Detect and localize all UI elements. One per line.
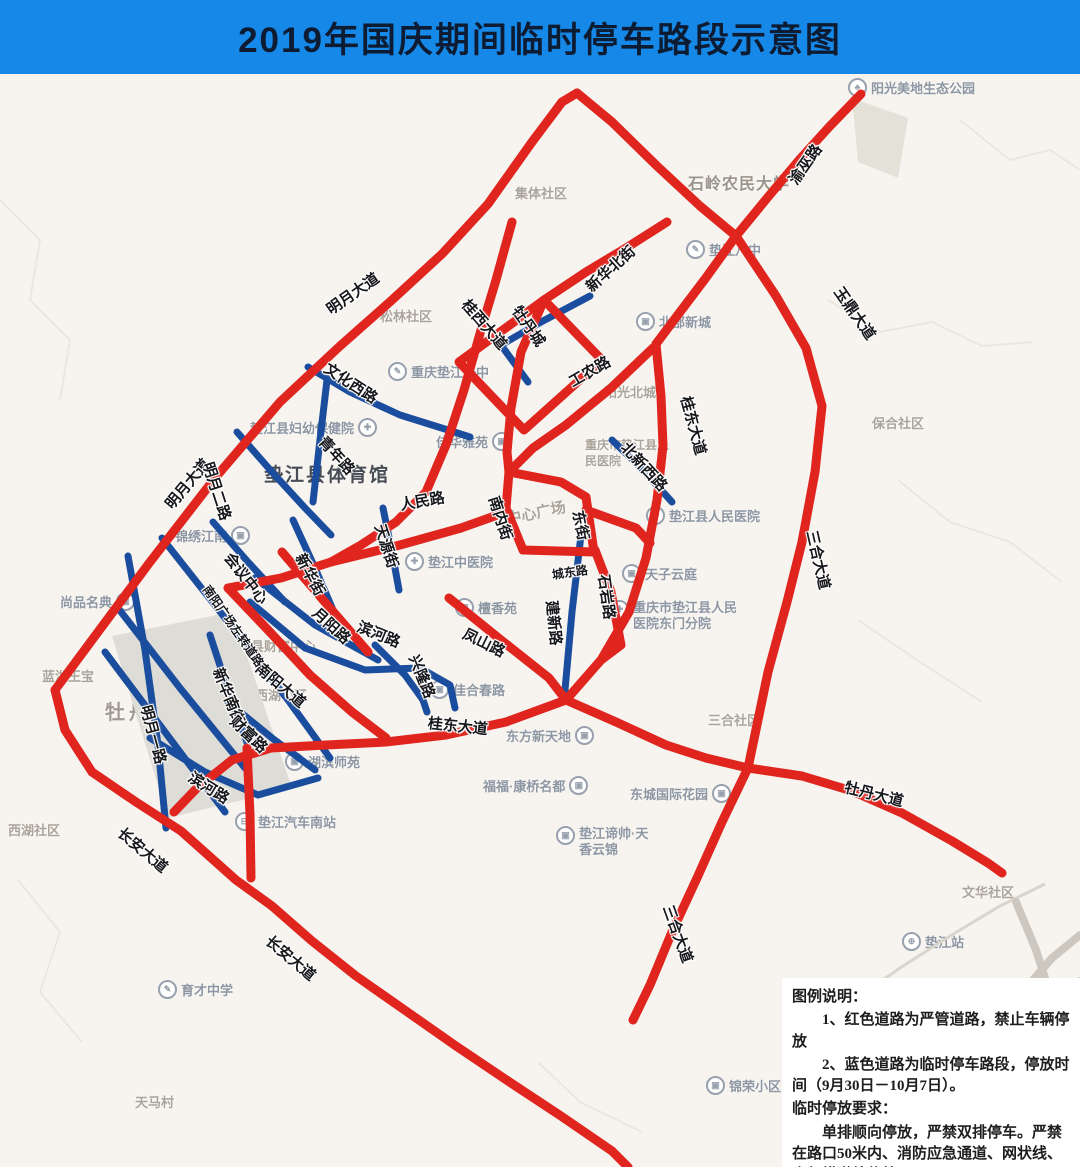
road-label-sanhe-2: 三合大道 bbox=[658, 902, 698, 966]
road-label-huiyi: 会议中心 bbox=[220, 548, 273, 608]
road-label-qingnian: 青年路 bbox=[314, 431, 360, 479]
road-label-guidong-north: 桂东大道 bbox=[676, 394, 712, 457]
road-label-tianyuan: 天源街 bbox=[370, 521, 404, 570]
road-label-shiyan: 石岩路 bbox=[594, 573, 621, 621]
road-label-nannei: 南内街 bbox=[484, 493, 518, 542]
road-label-changan-1: 长安大道 bbox=[113, 822, 172, 877]
road-label-wenhua-west: 文化西路 bbox=[320, 358, 382, 408]
road-label-mudancheng: 牡丹城 bbox=[507, 301, 550, 350]
road-label-mingyue-1st: 明月一路 bbox=[136, 703, 172, 766]
road-label-mudan-ave: 牡丹大道 bbox=[842, 776, 905, 811]
road-label-sanhe-1: 三合大道 bbox=[802, 528, 836, 591]
road-label-mingyue-ave-1: 明月大道 bbox=[322, 267, 383, 319]
road-label-binhe-1: 滨河路 bbox=[354, 616, 404, 652]
road-label-xinhua-st: 新华街 bbox=[291, 550, 331, 600]
title-bar: 2019年国庆期间临时停车路段示意图 bbox=[0, 0, 1080, 74]
legend-panel: 图例说明： 1、红色道路为严管道路，禁止车辆停放 2、蓝色道路为临时停车路段，停… bbox=[782, 978, 1080, 1167]
legend-heading: 图例说明： bbox=[792, 987, 1070, 1008]
road-label-fengshan: 凤山路 bbox=[459, 623, 509, 662]
road-label-dongjie: 东街 bbox=[568, 508, 595, 542]
road-label-binhe-2: 滨河路 bbox=[184, 767, 233, 809]
road-label-gongnong: 工农路 bbox=[565, 351, 614, 392]
road-label-chengdong: 城东路 bbox=[551, 561, 589, 583]
road-label-guixi: 桂西大道 bbox=[457, 295, 512, 354]
road-label-yuding: 玉鼎大道 bbox=[829, 282, 881, 343]
legend-line-red: 1、红色道路为严管道路，禁止车辆停放 bbox=[792, 1010, 1070, 1053]
road-label-jianxin: 建新路 bbox=[542, 599, 568, 646]
road-label-changan-2: 长安大道 bbox=[261, 930, 320, 985]
road-label-guidong-west: 桂东大道 bbox=[427, 712, 489, 739]
legend-requirements-heading: 临时停放要求： bbox=[792, 1099, 1070, 1120]
road-label-beixin-west: 北新西路 bbox=[616, 437, 672, 495]
legend-requirements-text: 单排顺向停放，严禁双排停车。严禁在路口50米内、消防应急通道、网状线、人行横道处… bbox=[792, 1123, 1070, 1167]
road-label-yueyang: 月阳路 bbox=[308, 603, 356, 649]
page-title: 2019年国庆期间临时停车路段示意图 bbox=[238, 12, 842, 63]
legend-line-blue: 2、蓝色道路为临时停车路段，停放时间（9月30日－10月7日）。 bbox=[792, 1055, 1070, 1098]
road-label-xinhua-north: 新华北街 bbox=[581, 241, 640, 297]
road-label-yuwu: 渝巫路 bbox=[783, 140, 826, 189]
parking-map-page: 2019年国庆期间临时停车路段示意图 集体社区 松林社区 石岭农民大学 保合社区… bbox=[0, 0, 1080, 1167]
road-label-renmin: 人民路 bbox=[398, 486, 446, 514]
road-label-xinglong: 兴隆路 bbox=[404, 652, 440, 702]
road-label-mingyue-2nd: 明月二路 bbox=[198, 459, 237, 523]
